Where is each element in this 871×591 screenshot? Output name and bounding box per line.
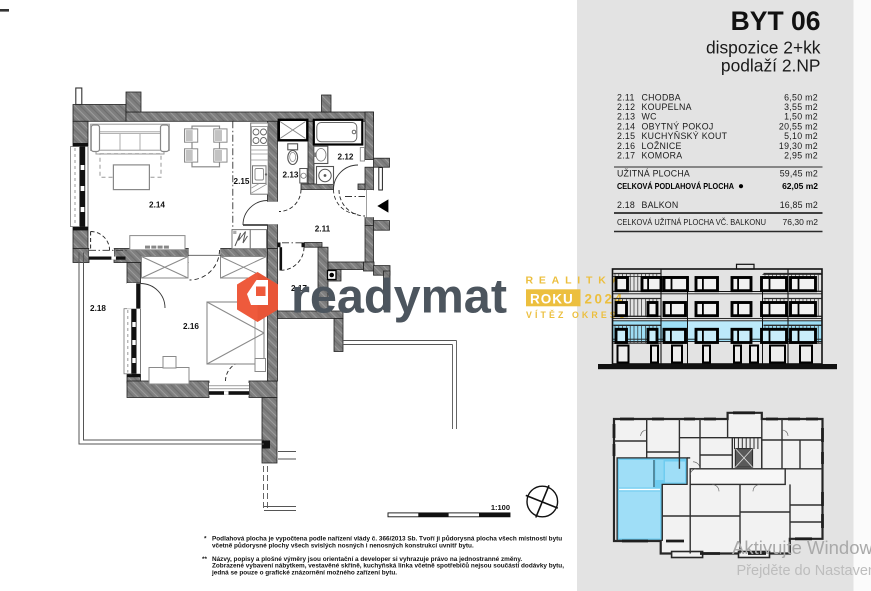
svg-text:2.18: 2.18 bbox=[617, 200, 635, 210]
svg-text:2.11: 2.11 bbox=[617, 92, 635, 102]
svg-text:1:100: 1:100 bbox=[491, 503, 510, 512]
svg-text:jedná se pouze o grafické znáz: jedná se pouze o grafické znázornění mož… bbox=[211, 569, 397, 576]
svg-text:2.13: 2.13 bbox=[617, 112, 635, 122]
svg-text:2.14: 2.14 bbox=[149, 201, 165, 210]
svg-text:LOŽNICE: LOŽNICE bbox=[642, 141, 682, 151]
svg-text:ROKU: ROKU bbox=[530, 291, 574, 306]
svg-text:CELKOVÁ UŽITNÁ PLOCHA VČ. BALK: CELKOVÁ UŽITNÁ PLOCHA VČ. BALKONU bbox=[617, 217, 766, 227]
svg-text:Přejděte do Nastavení a akt: Přejděte do Nastavení a akt bbox=[737, 563, 871, 579]
svg-text:2.17: 2.17 bbox=[617, 151, 635, 161]
svg-text:20,55 m2: 20,55 m2 bbox=[779, 121, 818, 131]
svg-text:KOUPELNA: KOUPELNA bbox=[642, 102, 692, 112]
svg-text:*: * bbox=[204, 535, 207, 542]
svg-text:CELKOVÁ PODLAHOVÁ PLOCHA: CELKOVÁ PODLAHOVÁ PLOCHA bbox=[617, 181, 734, 191]
svg-text:REALITKA: REALITKA bbox=[526, 275, 625, 287]
svg-text:62,05 m2: 62,05 m2 bbox=[782, 181, 818, 191]
svg-text:podlaží 2.NP: podlaží 2.NP bbox=[721, 56, 821, 76]
svg-text:WC: WC bbox=[642, 112, 658, 122]
svg-text:CHODBA: CHODBA bbox=[642, 92, 681, 102]
svg-text:včetně půdorysné plochy všech: včetně půdorysné plochy všech svislých n… bbox=[212, 541, 474, 549]
svg-text:2,95 m2: 2,95 m2 bbox=[784, 151, 818, 161]
svg-text:2.15: 2.15 bbox=[234, 177, 250, 186]
svg-text:OBYTNÝ POKOJ: OBYTNÝ POKOJ bbox=[642, 121, 714, 131]
svg-text:2.12: 2.12 bbox=[617, 102, 635, 112]
svg-text:16,85 m2: 16,85 m2 bbox=[780, 200, 818, 210]
svg-text:KOMORA: KOMORA bbox=[642, 151, 683, 161]
svg-text:2.16: 2.16 bbox=[617, 141, 635, 151]
svg-text:59,45 m2: 59,45 m2 bbox=[780, 169, 818, 179]
svg-text:2.18: 2.18 bbox=[90, 304, 106, 313]
svg-text:BYT 06: BYT 06 bbox=[731, 6, 821, 36]
svg-text:UŽITNÁ PLOCHA: UŽITNÁ PLOCHA bbox=[617, 169, 690, 179]
svg-text:dispozice 2+kk: dispozice 2+kk bbox=[706, 38, 821, 58]
svg-text:2.15: 2.15 bbox=[617, 131, 635, 141]
svg-text:2.13: 2.13 bbox=[283, 170, 299, 179]
svg-text:3,55 m2: 3,55 m2 bbox=[784, 102, 818, 112]
svg-text:2.16: 2.16 bbox=[183, 322, 199, 331]
svg-text:KUCHYŇSKÝ KOUT: KUCHYŇSKÝ KOUT bbox=[642, 131, 728, 141]
svg-text:5,10 m2: 5,10 m2 bbox=[784, 131, 818, 141]
svg-text:readymat: readymat bbox=[291, 271, 507, 324]
svg-text:BALKON: BALKON bbox=[642, 200, 679, 210]
svg-text:Podlahová plocha je vypočtena: Podlahová plocha je vypočtena podle naří… bbox=[212, 534, 562, 542]
svg-text:1,50 m2: 1,50 m2 bbox=[784, 112, 818, 122]
svg-text:2.11: 2.11 bbox=[315, 224, 331, 233]
svg-text:19,30 m2: 19,30 m2 bbox=[779, 141, 818, 151]
svg-text:2.14: 2.14 bbox=[617, 121, 635, 131]
svg-text:6,50 m2: 6,50 m2 bbox=[784, 92, 818, 102]
svg-text:Aktivujte Windows: Aktivujte Windows bbox=[732, 537, 871, 558]
svg-text:76,30 m2: 76,30 m2 bbox=[783, 217, 819, 227]
svg-text:2.12: 2.12 bbox=[338, 153, 354, 162]
svg-text:**: ** bbox=[202, 556, 207, 563]
